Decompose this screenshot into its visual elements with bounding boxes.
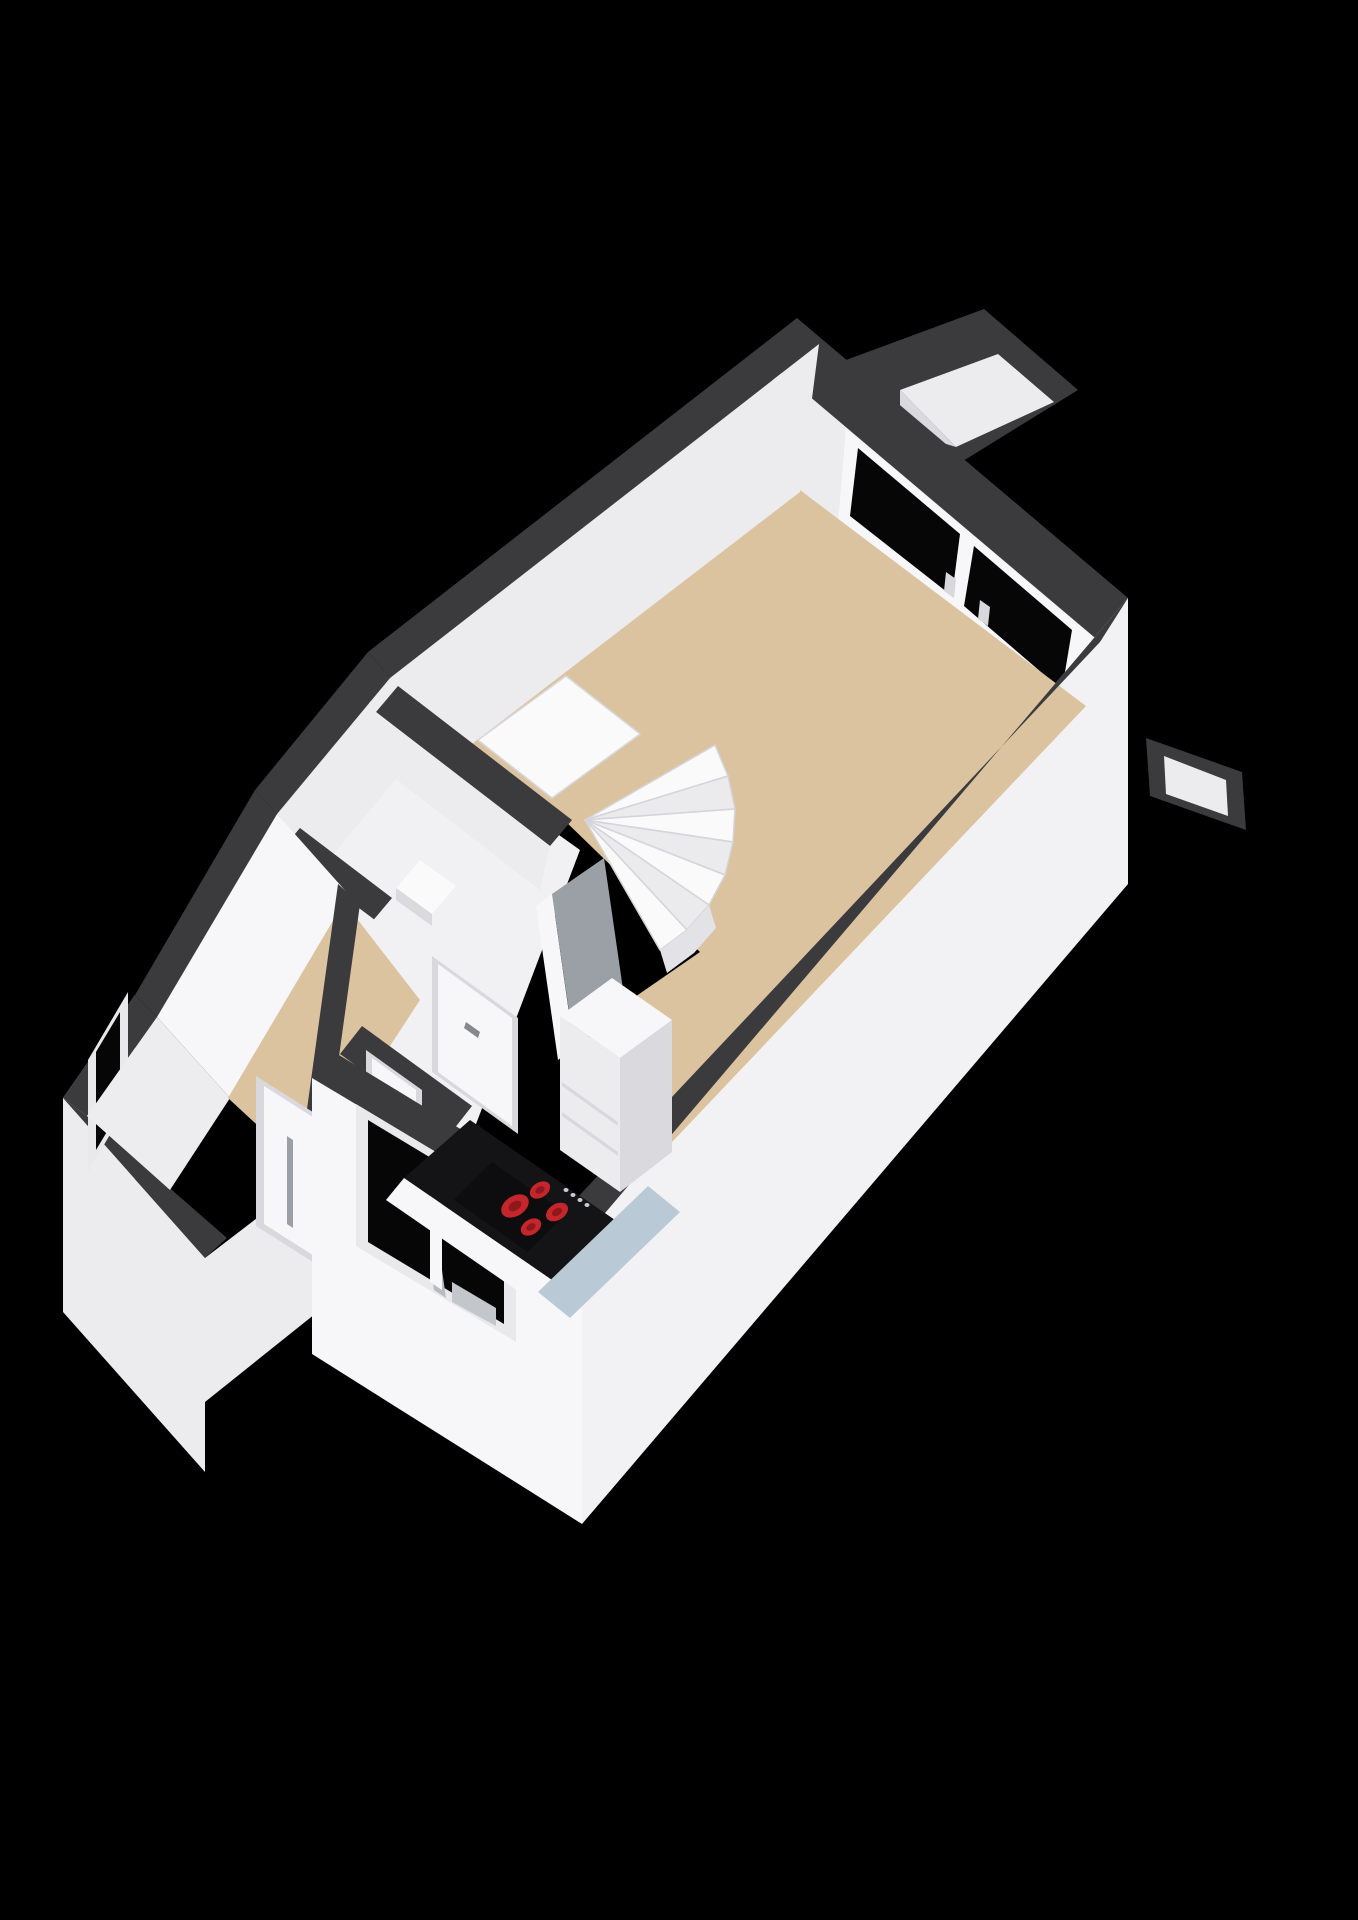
hob-control-3 (578, 1198, 583, 1202)
front-door-handle (287, 1136, 293, 1228)
hob-control-1 (564, 1188, 569, 1192)
hob-control-4 (585, 1203, 590, 1207)
floorplan-3d-view (0, 0, 1358, 1920)
floorplan-canvas (0, 0, 1358, 1920)
hob-control-2 (571, 1193, 576, 1197)
